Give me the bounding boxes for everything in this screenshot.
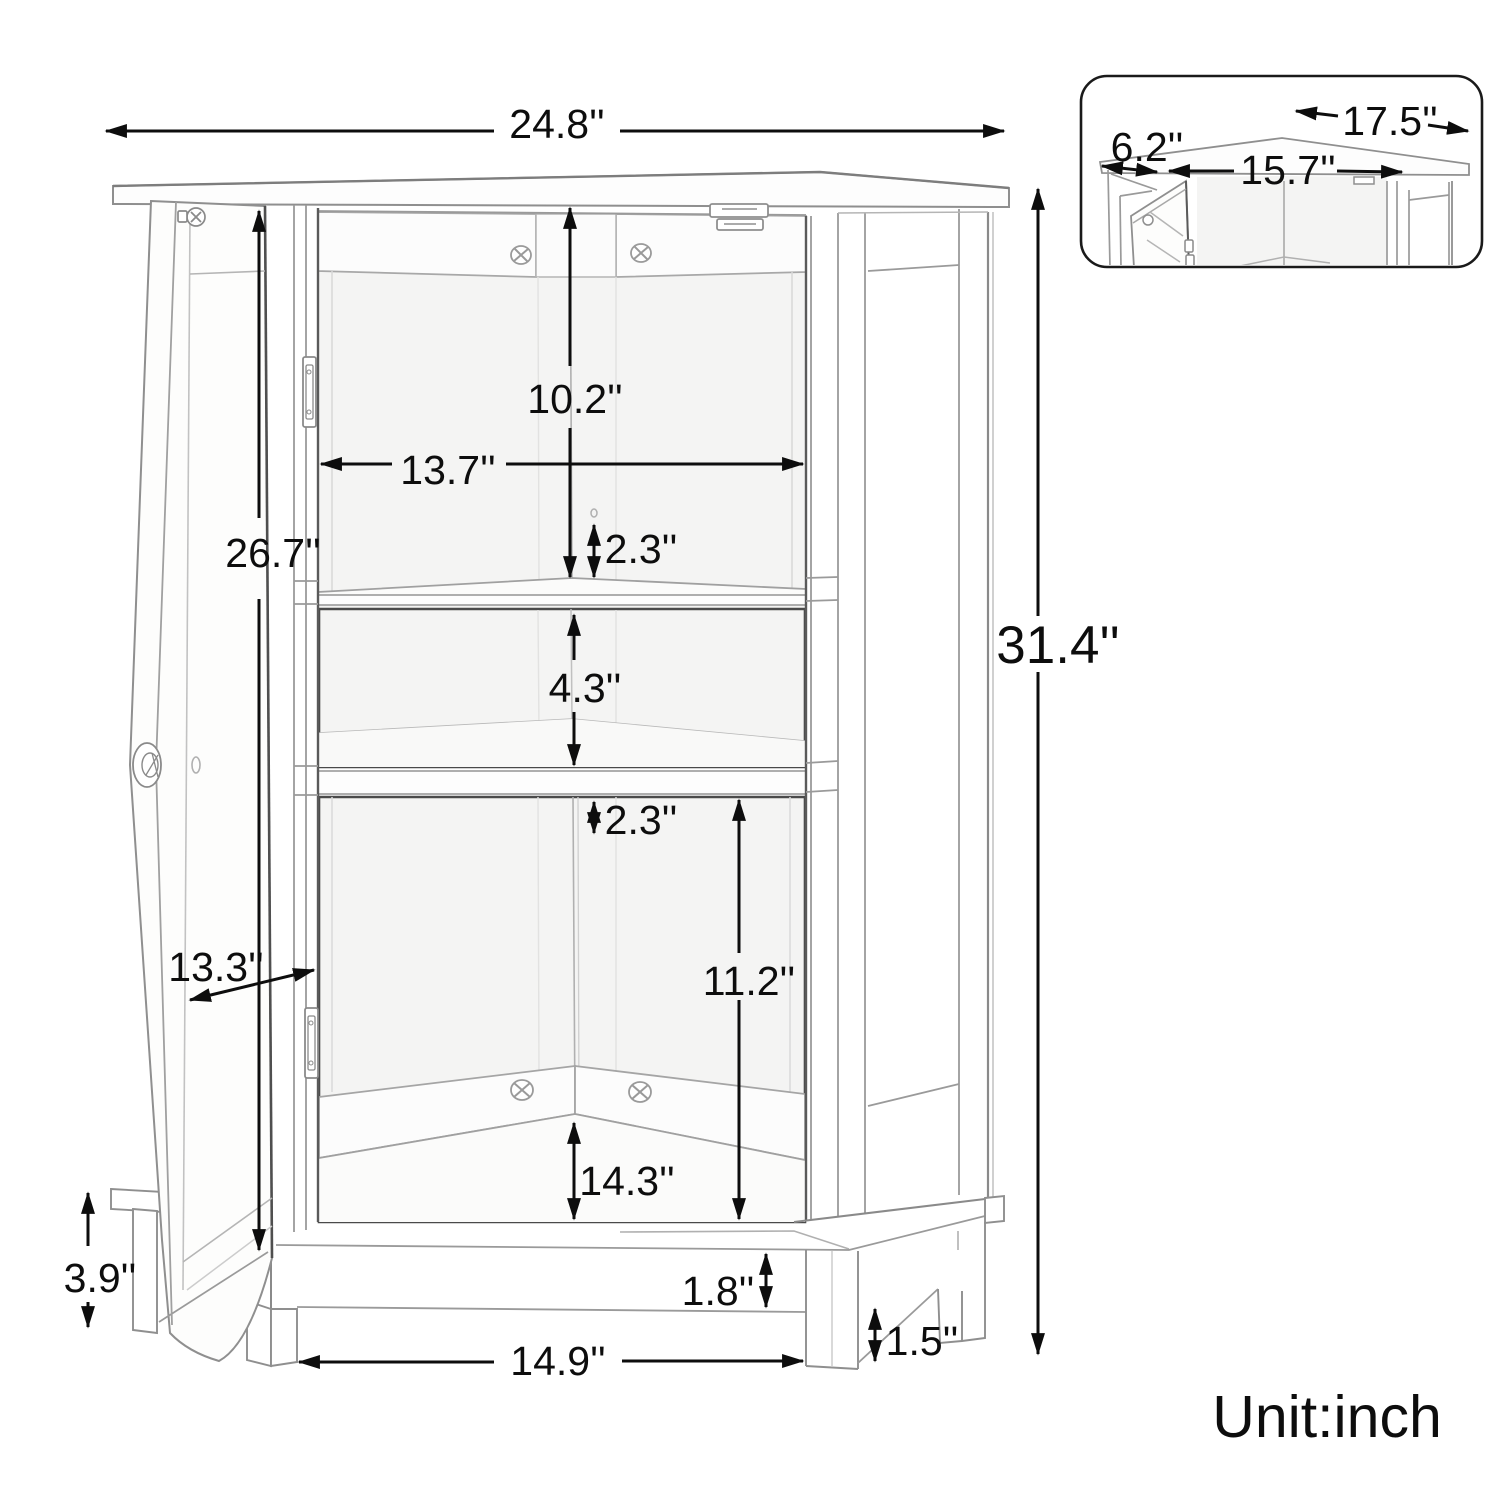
svg-text:2.3'': 2.3'': [605, 797, 678, 843]
svg-text:3.9'': 3.9'': [64, 1255, 137, 1301]
svg-text:31.4'': 31.4'': [996, 616, 1119, 675]
svg-text:Unit:inch: Unit:inch: [1212, 1384, 1442, 1450]
svg-text:11.2'': 11.2'': [703, 958, 795, 1004]
svg-text:26.7'': 26.7'': [225, 530, 320, 576]
svg-text:14.9'': 14.9'': [510, 1338, 605, 1384]
svg-text:10.2'': 10.2'': [527, 376, 622, 422]
svg-text:6.2'': 6.2'': [1111, 124, 1184, 170]
svg-text:1.8'': 1.8'': [682, 1268, 755, 1314]
svg-text:13.3'': 13.3'': [168, 944, 263, 990]
svg-text:2.3'': 2.3'': [605, 526, 678, 572]
svg-text:15.7'': 15.7'': [1240, 147, 1335, 193]
svg-text:14.3'': 14.3'': [579, 1158, 674, 1204]
svg-text:24.8'': 24.8'': [509, 101, 604, 147]
svg-text:17.5'': 17.5'': [1342, 98, 1437, 144]
svg-text:13.7'': 13.7'': [400, 447, 495, 493]
svg-text:1.5'': 1.5'': [886, 1318, 959, 1364]
svg-text:4.3'': 4.3'': [549, 665, 622, 711]
